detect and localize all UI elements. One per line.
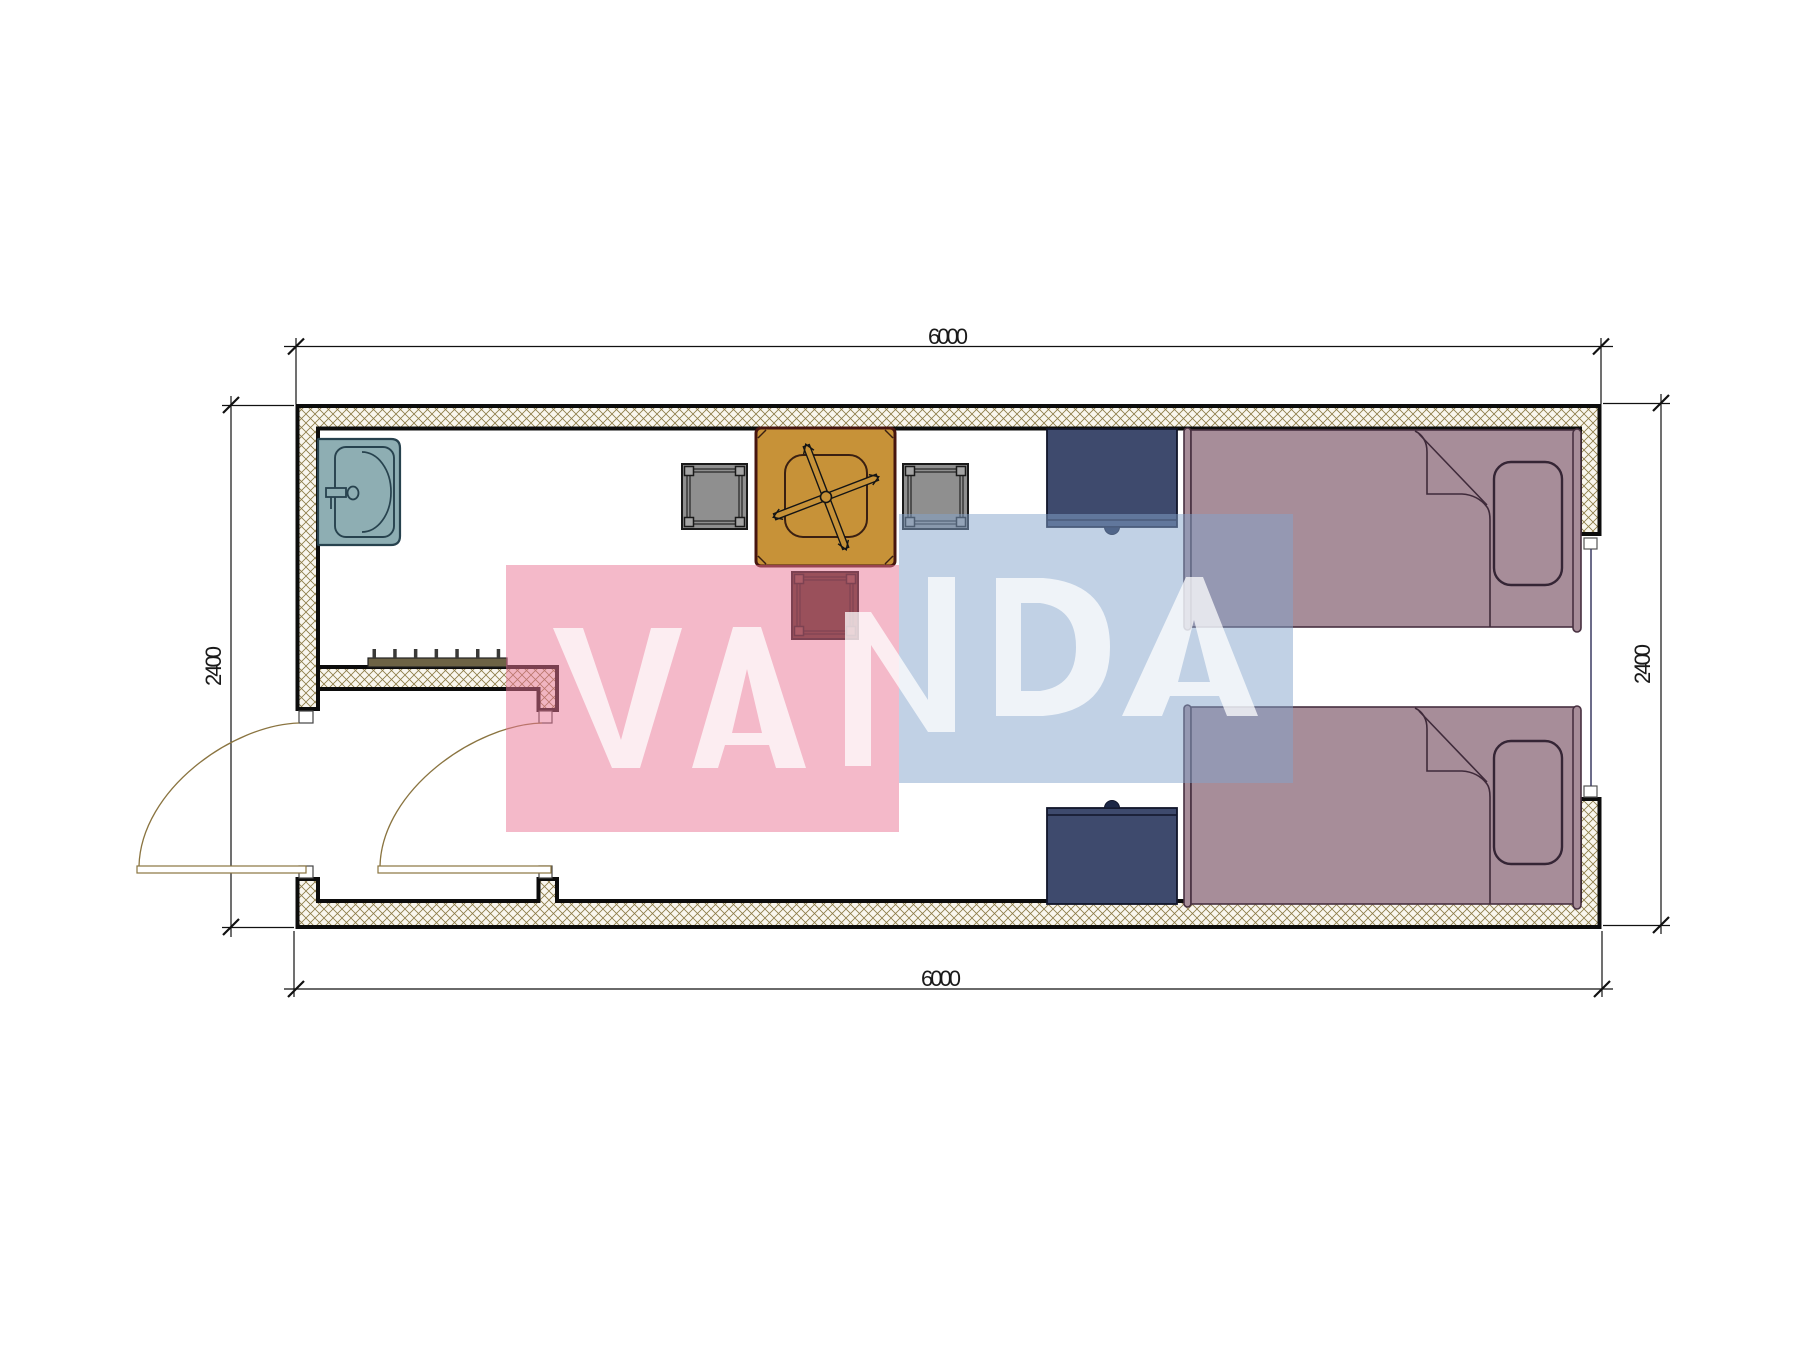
svg-text:2400: 2400: [201, 646, 226, 686]
svg-text:6000: 6000: [928, 324, 968, 349]
svg-text:2400: 2400: [1630, 644, 1655, 684]
svg-text:6000: 6000: [921, 966, 961, 991]
